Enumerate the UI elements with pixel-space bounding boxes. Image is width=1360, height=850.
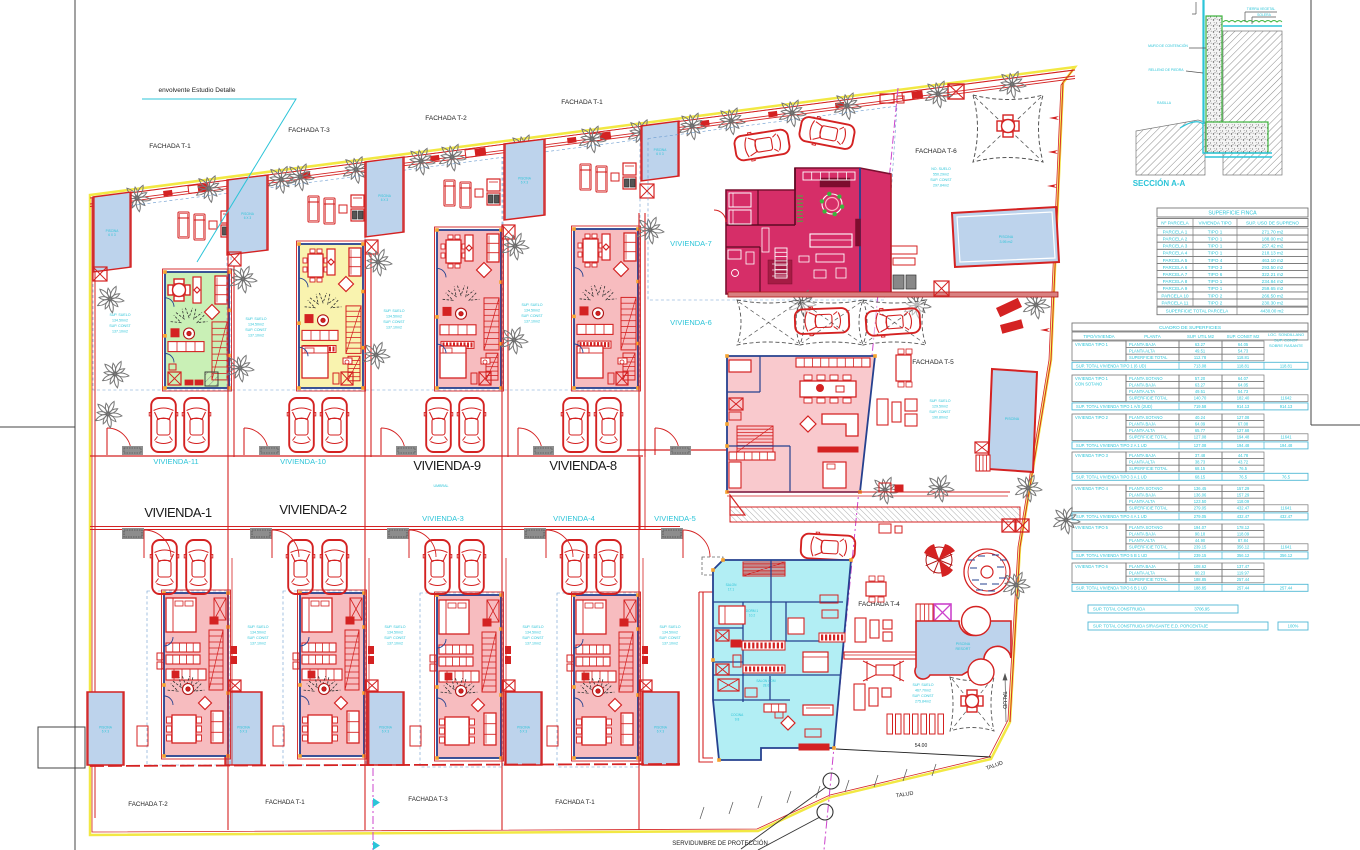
svg-text:356.12: 356.12 xyxy=(1237,553,1250,558)
svg-text:137.10m2: 137.10m2 xyxy=(387,642,403,646)
svg-text:100%: 100% xyxy=(1288,624,1299,629)
svg-text:TALUD: TALUD xyxy=(1001,691,1007,709)
svg-text:57.20: 57.20 xyxy=(1195,376,1206,381)
svg-text:194.48: 194.48 xyxy=(1280,443,1293,448)
svg-text:VIVIENDA-8: VIVIENDA-8 xyxy=(549,458,617,473)
svg-text:10.2: 10.2 xyxy=(749,614,755,618)
svg-text:UMBRAL: UMBRAL xyxy=(434,484,449,488)
svg-text:127.08: 127.08 xyxy=(1194,435,1207,440)
svg-text:6 X 3: 6 X 3 xyxy=(108,233,116,237)
svg-text:TIPO 6: TIPO 6 xyxy=(1208,272,1223,277)
svg-text:118.81: 118.81 xyxy=(1237,355,1250,360)
svg-text:44.90: 44.90 xyxy=(1195,538,1206,543)
svg-text:64.07: 64.07 xyxy=(1238,376,1249,381)
svg-text:SUP. SUELO: SUP. SUELO xyxy=(384,625,405,629)
svg-text:PARCELA 8: PARCELA 8 xyxy=(1163,279,1188,284)
svg-text:356.12: 356.12 xyxy=(1280,553,1293,558)
svg-text:112.78: 112.78 xyxy=(1194,355,1207,360)
svg-text:PLANTA ALTA: PLANTA ALTA xyxy=(1129,538,1155,543)
svg-text:293.50 m2: 293.50 m2 xyxy=(1262,265,1284,270)
svg-text:76.5: 76.5 xyxy=(1239,474,1248,479)
svg-text:PLANTA ALTA: PLANTA ALTA xyxy=(1129,460,1155,465)
svg-text:157.29: 157.29 xyxy=(1237,486,1250,491)
svg-text:PARCELA 7: PARCELA 7 xyxy=(1163,272,1188,277)
svg-text:54.00: 54.00 xyxy=(915,743,928,749)
svg-text:137.10m2: 137.10m2 xyxy=(250,642,266,646)
svg-text:6 X 3: 6 X 3 xyxy=(381,198,389,202)
svg-text:188.85: 188.85 xyxy=(1194,577,1207,582)
svg-text:PLANTA BAJA: PLANTA BAJA xyxy=(1129,493,1156,498)
svg-text:PARCELA 5: PARCELA 5 xyxy=(1163,258,1188,263)
svg-text:VIVIENDA-4: VIVIENDA-4 xyxy=(553,514,595,523)
svg-text:188.85: 188.85 xyxy=(1194,585,1207,590)
svg-text:719.58: 719.58 xyxy=(1194,404,1207,409)
svg-text:SUP. UTIL M2: SUP. UTIL M2 xyxy=(1187,334,1215,339)
svg-text:SUP. SUELO: SUP. SUELO xyxy=(912,683,933,687)
svg-text:SUP. SUELO: SUP. SUELO xyxy=(929,399,950,403)
svg-text:65.77: 65.77 xyxy=(1195,428,1206,433)
svg-text:PLANTA SOTANO: PLANTA SOTANO xyxy=(1129,376,1163,381)
svg-text:136.06: 136.06 xyxy=(1194,493,1207,498)
svg-text:SALON COM: SALON COM xyxy=(756,679,775,683)
svg-text:PLANTA ALTA: PLANTA ALTA xyxy=(1129,428,1155,433)
svg-text:118.81: 118.81 xyxy=(1237,363,1250,368)
svg-text:432.47: 432.47 xyxy=(1237,514,1250,519)
svg-text:TIPO/VIVIENDA: TIPO/VIVIENDA xyxy=(1083,334,1114,339)
svg-text:SUP. CONST: SUP. CONST xyxy=(245,328,267,332)
svg-text:550.29m2: 550.29m2 xyxy=(933,173,949,177)
svg-text:137.10m2: 137.10m2 xyxy=(248,334,264,338)
svg-text:137.10m2: 137.10m2 xyxy=(662,642,678,646)
svg-text:SUPERFICIE TOTAL PARCELA: SUPERFICIE TOTAL PARCELA xyxy=(1166,309,1229,314)
svg-text:SUPERFICIE TOTAL: SUPERFICIE TOTAL xyxy=(1129,435,1168,440)
svg-text:SUPERFICIE TOTAL: SUPERFICIE TOTAL xyxy=(1129,545,1168,550)
svg-text:67.08: 67.08 xyxy=(1238,422,1249,427)
svg-text:PLANTA SOTANO: PLANTA SOTANO xyxy=(1129,525,1163,530)
svg-text:TIPO 1: TIPO 1 xyxy=(1208,229,1223,234)
svg-text:SUP. CONST: SUP. CONST xyxy=(247,636,269,640)
svg-text:134.50m2: 134.50m2 xyxy=(386,315,402,319)
svg-text:137.10m2: 137.10m2 xyxy=(524,320,540,324)
svg-text:TIPO 2: TIPO 2 xyxy=(1208,293,1223,298)
svg-text:PLANTA BAJA: PLANTA BAJA xyxy=(1129,383,1156,388)
svg-text:140.70: 140.70 xyxy=(1194,396,1207,401)
svg-text:CON SOTANO: CON SOTANO xyxy=(1075,382,1102,387)
svg-text:FACHADA T-3: FACHADA T-3 xyxy=(408,796,448,803)
svg-text:TIERRA VEGETAL: TIERRA VEGETAL xyxy=(1247,7,1276,11)
svg-text:28.6: 28.6 xyxy=(763,684,769,688)
svg-text:FACHADA T-1: FACHADA T-1 xyxy=(555,799,595,806)
svg-text:40.24: 40.24 xyxy=(1195,415,1206,420)
svg-text:188.00 m2: 188.00 m2 xyxy=(1262,237,1284,242)
svg-text:COCINA: COCINA xyxy=(731,713,744,717)
svg-text:SOLERA: SOLERA xyxy=(1257,13,1271,17)
svg-text:SUPERFICIE TOTAL: SUPERFICIE TOTAL xyxy=(1129,396,1168,401)
svg-text:SUP. CONST: SUP. CONST xyxy=(384,636,406,640)
svg-text:3.95 m2: 3.95 m2 xyxy=(1000,240,1013,244)
svg-text:279.05: 279.05 xyxy=(1194,514,1207,519)
svg-text:17.1: 17.1 xyxy=(728,588,734,592)
svg-text:SUP. SUELO: SUP. SUELO xyxy=(522,625,543,629)
svg-text:TIPO 2: TIPO 2 xyxy=(1208,300,1223,305)
svg-text:SECCIÓN A-A: SECCIÓN A-A xyxy=(1133,179,1186,188)
svg-text:SUPERFICIE TOTAL: SUPERFICIE TOTAL xyxy=(1129,466,1168,471)
svg-text:VIVIENDA-5: VIVIENDA-5 xyxy=(654,514,696,523)
svg-text:80.23: 80.23 xyxy=(1195,571,1206,576)
svg-text:137.10m2: 137.10m2 xyxy=(386,326,402,330)
svg-text:PARCELA 9: PARCELA 9 xyxy=(1163,286,1188,291)
svg-text:PLANTA BAJA: PLANTA BAJA xyxy=(1129,532,1156,537)
svg-text:297.84m2: 297.84m2 xyxy=(933,184,949,188)
svg-text:54.73: 54.73 xyxy=(1238,389,1249,394)
svg-text:SUP. SUELO: SUP. SUELO xyxy=(383,309,404,313)
svg-text:90.18: 90.18 xyxy=(1195,532,1206,537)
svg-text:37.48: 37.48 xyxy=(1195,453,1206,458)
svg-text:68.15: 68.15 xyxy=(1195,466,1206,471)
svg-text:VIVIENDA-7: VIVIENDA-7 xyxy=(670,239,712,248)
svg-text:11641: 11641 xyxy=(1280,506,1292,511)
svg-text:127.68: 127.68 xyxy=(1237,428,1250,433)
svg-text:SUPERFICIE FINCA: SUPERFICIE FINCA xyxy=(1208,210,1257,216)
svg-text:VIVIENDA TIPO: VIVIENDA TIPO xyxy=(1198,221,1232,226)
svg-text:VIVIENDA-6: VIVIENDA-6 xyxy=(670,318,712,327)
svg-text:134.50m2: 134.50m2 xyxy=(662,631,678,635)
svg-text:6 X 3: 6 X 3 xyxy=(102,730,110,734)
svg-text:VIVIENDA TIPO 3: VIVIENDA TIPO 3 xyxy=(1075,453,1109,458)
svg-text:137.10m2: 137.10m2 xyxy=(525,642,541,646)
svg-text:134.50m2: 134.50m2 xyxy=(525,631,541,635)
svg-text:DORM 1: DORM 1 xyxy=(746,609,759,613)
svg-text:TIPO 3: TIPO 3 xyxy=(1208,265,1223,270)
svg-text:FACHADA T-6: FACHADA T-6 xyxy=(915,148,957,155)
svg-text:SUP. TOTAL VIVIENDA TIPO 4 A 1: SUP. TOTAL VIVIENDA TIPO 4 A 1 UD xyxy=(1076,514,1147,519)
svg-text:43.72: 43.72 xyxy=(1238,460,1249,465)
svg-text:TIPO 1: TIPO 1 xyxy=(1208,279,1223,284)
svg-text:194.48: 194.48 xyxy=(1237,443,1250,448)
svg-text:VIVIENDA-11: VIVIENDA-11 xyxy=(153,457,198,466)
svg-text:914.13: 914.13 xyxy=(1237,404,1250,409)
svg-text:190.80m2: 190.80m2 xyxy=(932,416,948,420)
svg-text:PLANTA BAJA: PLANTA BAJA xyxy=(1129,342,1156,347)
svg-text:TIPO 1: TIPO 1 xyxy=(1208,286,1223,291)
svg-text:266.50 m2: 266.50 m2 xyxy=(1262,293,1284,298)
svg-text:FACHADA T-3: FACHADA T-3 xyxy=(288,127,330,134)
svg-text:SUP. SUELO: SUP. SUELO xyxy=(245,317,266,321)
svg-text:127.08: 127.08 xyxy=(1237,415,1250,420)
svg-text:SUP. SUELO: SUP. SUELO xyxy=(109,313,130,317)
svg-text:SUP. TOTAL VIVIENDA TIPO 2 A 1: SUP. TOTAL VIVIENDA TIPO 2 A 1 UD xyxy=(1076,443,1147,448)
svg-text:SUP. CONST M2: SUP. CONST M2 xyxy=(1227,334,1260,339)
svg-text:279.05: 279.05 xyxy=(1194,506,1207,511)
svg-text:TIPO 1: TIPO 1 xyxy=(1208,244,1223,249)
svg-text:VIVIENDA TIPO 2: VIVIENDA TIPO 2 xyxy=(1075,415,1109,420)
svg-text:136.45: 136.45 xyxy=(1194,486,1207,491)
svg-text:87.84: 87.84 xyxy=(1238,538,1249,543)
svg-text:VIVIENDA TIPO 4: VIVIENDA TIPO 4 xyxy=(1075,486,1109,491)
svg-text:239.15: 239.15 xyxy=(1194,553,1207,558)
svg-text:134.50m2: 134.50m2 xyxy=(524,309,540,313)
svg-text:VIVIENDA TIPO 1: VIVIENDA TIPO 1 xyxy=(1075,376,1109,381)
svg-text:64.05: 64.05 xyxy=(1238,383,1249,388)
svg-text:257.44: 257.44 xyxy=(1280,585,1293,590)
svg-text:FACHADA T-1: FACHADA T-1 xyxy=(149,143,191,150)
svg-text:SALON: SALON xyxy=(726,583,738,587)
svg-text:TIPO 4: TIPO 4 xyxy=(1208,258,1223,263)
svg-text:VIVIENDA-9: VIVIENDA-9 xyxy=(413,458,481,473)
svg-text:PLANTA ALTA: PLANTA ALTA xyxy=(1129,389,1155,394)
svg-text:PLANTA: PLANTA xyxy=(1144,334,1161,339)
svg-text:RASILLA: RASILLA xyxy=(1157,101,1172,105)
svg-text:CUADRO DE SUPERFICIES: CUADRO DE SUPERFICIES xyxy=(1159,325,1221,331)
svg-text:SUP. CONST: SUP. CONST xyxy=(659,636,681,640)
svg-text:NO. SUELO: NO. SUELO xyxy=(931,167,951,171)
svg-text:SUP. TOTAL VIVIENDA TIPO 6 B 1: SUP. TOTAL VIVIENDA TIPO 6 B 1 UD xyxy=(1076,585,1147,590)
svg-text:SUP. USO DE SUPRENO: SUP. USO DE SUPRENO xyxy=(1246,221,1299,226)
svg-text:Nº PARCELA: Nº PARCELA xyxy=(1161,221,1189,226)
svg-text:PLANTA ALTA: PLANTA ALTA xyxy=(1129,499,1155,504)
svg-text:PISCINA: PISCINA xyxy=(999,235,1014,239)
svg-text:PARCELA 2: PARCELA 2 xyxy=(1163,237,1188,242)
svg-text:134.50m2: 134.50m2 xyxy=(250,631,266,635)
svg-text:VIVIENDA-1: VIVIENDA-1 xyxy=(144,505,212,520)
svg-text:234.84 m2: 234.84 m2 xyxy=(1262,279,1284,284)
svg-text:49.51: 49.51 xyxy=(1195,349,1206,354)
svg-text:64.09: 64.09 xyxy=(1195,422,1206,427)
svg-text:194.48: 194.48 xyxy=(1237,435,1250,440)
svg-text:SUPERFICIE TOTAL: SUPERFICIE TOTAL xyxy=(1129,577,1168,582)
svg-text:38.73: 38.73 xyxy=(1195,460,1206,465)
svg-text:PLANTA SOTANO: PLANTA SOTANO xyxy=(1129,486,1163,491)
svg-text:54.73: 54.73 xyxy=(1238,349,1249,354)
svg-text:SUP. SUELO: SUP. SUELO xyxy=(659,625,680,629)
svg-text:3706.95: 3706.95 xyxy=(1194,607,1210,612)
svg-text:239.15: 239.15 xyxy=(1194,545,1207,550)
svg-text:4430.00 m2: 4430.00 m2 xyxy=(1260,309,1284,314)
svg-text:SUP. CONST: SUP. CONST xyxy=(521,314,543,318)
svg-text:182.40: 182.40 xyxy=(1237,396,1250,401)
svg-text:SUP. CONST: SUP. CONST xyxy=(912,694,934,698)
svg-text:76.5: 76.5 xyxy=(1239,466,1248,471)
svg-text:SUP. SUELO: SUP. SUELO xyxy=(247,625,268,629)
svg-text:SUP. CONST: SUP. CONST xyxy=(1274,338,1298,343)
svg-text:PARCELA 10: PARCELA 10 xyxy=(1161,293,1189,298)
svg-text:6 X 3: 6 X 3 xyxy=(382,730,390,734)
svg-text:6 X 3: 6 X 3 xyxy=(240,730,248,734)
svg-text:FACHADA T-1: FACHADA T-1 xyxy=(561,99,603,106)
svg-text:432.47: 432.47 xyxy=(1280,514,1293,519)
svg-text:6 X 3: 6 X 3 xyxy=(520,730,528,734)
svg-text:MURO DE CONTENCIÓN: MURO DE CONTENCIÓN xyxy=(1148,43,1188,48)
svg-text:230.30 m2: 230.30 m2 xyxy=(1262,300,1284,305)
svg-text:PARCELA 6: PARCELA 6 xyxy=(1163,265,1188,270)
svg-text:467.70m2: 467.70m2 xyxy=(915,689,931,693)
svg-text:SUP. TOTAL VIVIENDA TIPO 5 B 1: SUP. TOTAL VIVIENDA TIPO 5 B 1 UD xyxy=(1076,553,1147,558)
svg-text:SUP. TOTAL CONSTRUIDA: SUP. TOTAL CONSTRUIDA xyxy=(1093,607,1145,612)
svg-text:VIVIENDA-10: VIVIENDA-10 xyxy=(280,457,326,466)
svg-text:VIVIENDA-3: VIVIENDA-3 xyxy=(422,514,464,523)
svg-text:SUP. SUELO: SUP. SUELO xyxy=(521,303,542,307)
svg-text:137.10m2: 137.10m2 xyxy=(112,330,128,334)
svg-text:118.09: 118.09 xyxy=(1237,532,1250,537)
svg-text:PARCELA 1: PARCELA 1 xyxy=(1163,229,1188,234)
svg-text:VIVIENDA-2: VIVIENDA-2 xyxy=(279,502,347,517)
svg-text:TIPO 1: TIPO 1 xyxy=(1208,251,1223,256)
svg-text:157.29: 157.29 xyxy=(1237,493,1250,498)
svg-text:SUP. CONST: SUP. CONST xyxy=(929,410,951,414)
svg-text:6 X 3: 6 X 3 xyxy=(521,181,529,185)
svg-text:257.44: 257.44 xyxy=(1237,585,1250,590)
svg-text:PISCINA: PISCINA xyxy=(1005,417,1020,421)
svg-text:463.10 m2: 463.10 m2 xyxy=(1262,258,1284,263)
svg-text:9.8: 9.8 xyxy=(735,718,740,722)
svg-text:PISCINA: PISCINA xyxy=(956,642,971,646)
svg-text:6 X 3: 6 X 3 xyxy=(657,730,665,734)
svg-text:PARCELA 3: PARCELA 3 xyxy=(1163,244,1188,249)
svg-text:257.44: 257.44 xyxy=(1237,577,1250,582)
svg-text:SUP. TOTAL VIVIENDA TIPO 1 (6: SUP. TOTAL VIVIENDA TIPO 1 (6 UD) xyxy=(1076,363,1147,368)
svg-text:6 X 3: 6 X 3 xyxy=(244,216,252,220)
svg-text:134.50m2: 134.50m2 xyxy=(387,631,403,635)
svg-text:PLANTA BAJA: PLANTA BAJA xyxy=(1129,564,1156,569)
svg-text:63.27: 63.27 xyxy=(1195,383,1206,388)
svg-text:SUPERFICIE TOTAL: SUPERFICIE TOTAL xyxy=(1129,506,1168,511)
svg-text:68.15: 68.15 xyxy=(1195,474,1206,479)
svg-text:11641: 11641 xyxy=(1280,545,1292,550)
svg-text:PLANTA BAJA: PLANTA BAJA xyxy=(1129,453,1156,458)
svg-text:259.65 m2: 259.65 m2 xyxy=(1262,286,1284,291)
svg-text:TIPO 1: TIPO 1 xyxy=(1208,237,1223,242)
svg-text:257.42 m2: 257.42 m2 xyxy=(1262,244,1284,249)
svg-text:PARCELA 4: PARCELA 4 xyxy=(1163,251,1188,256)
svg-text:76.5: 76.5 xyxy=(1282,474,1291,479)
svg-text:SUP. TOTAL VIVIENDA TIPO 1 A/S: SUP. TOTAL VIVIENDA TIPO 1 A/S (2UD) xyxy=(1076,404,1153,409)
svg-text:RELLENO DE PIEDRA: RELLENO DE PIEDRA xyxy=(1148,68,1184,72)
svg-text:356.12: 356.12 xyxy=(1237,545,1250,550)
svg-text:129.50m2: 129.50m2 xyxy=(932,405,948,409)
svg-text:275.84m2: 275.84m2 xyxy=(915,700,931,704)
svg-text:49.51: 49.51 xyxy=(1195,389,1206,394)
svg-text:108.62: 108.62 xyxy=(1194,564,1207,569)
svg-text:118.81: 118.81 xyxy=(1280,363,1293,368)
svg-text:218.13 m2: 218.13 m2 xyxy=(1262,251,1284,256)
svg-text:134.50m2: 134.50m2 xyxy=(248,323,264,327)
svg-text:SUP. CONST: SUP. CONST xyxy=(930,178,952,182)
svg-text:VIVIENDA TIPO 1: VIVIENDA TIPO 1 xyxy=(1075,342,1109,347)
svg-text:127.08: 127.08 xyxy=(1194,443,1207,448)
svg-text:envolvente Estudio Detalle: envolvente Estudio Detalle xyxy=(159,87,236,94)
svg-text:SUPERFICIE TOTAL: SUPERFICIE TOTAL xyxy=(1129,355,1168,360)
svg-text:RESORT: RESORT xyxy=(956,647,972,651)
svg-text:SUP. TOTAL VIVIENDA TIPO 3 A 1: SUP. TOTAL VIVIENDA TIPO 3 A 1 UD xyxy=(1076,474,1147,479)
svg-text:VIVIENDA TIPO 5: VIVIENDA TIPO 5 xyxy=(1075,525,1109,530)
svg-text:322.21 m2: 322.21 m2 xyxy=(1262,272,1284,277)
svg-text:VIVIENDA TIPO 6: VIVIENDA TIPO 6 xyxy=(1075,564,1109,569)
svg-text:134.50m2: 134.50m2 xyxy=(112,319,128,323)
svg-text:271.70 m2: 271.70 m2 xyxy=(1262,229,1284,234)
svg-text:SUP. CONST: SUP. CONST xyxy=(109,324,131,328)
svg-text:FACHADA T-5: FACHADA T-5 xyxy=(912,359,954,366)
svg-text:PLANTA ALTA: PLANTA ALTA xyxy=(1129,349,1155,354)
svg-text:PARCELA 11: PARCELA 11 xyxy=(1162,300,1189,305)
svg-text:118.09: 118.09 xyxy=(1237,499,1250,504)
svg-text:432.47: 432.47 xyxy=(1237,506,1250,511)
svg-text:63.27: 63.27 xyxy=(1195,342,1206,347)
svg-text:178.12: 178.12 xyxy=(1237,525,1250,530)
svg-text:64.05: 64.05 xyxy=(1238,342,1249,347)
svg-text:6 X 3: 6 X 3 xyxy=(656,152,664,156)
svg-text:119.97: 119.97 xyxy=(1237,571,1250,576)
svg-text:LOC. SONDILLANO: LOC. SONDILLANO xyxy=(1268,332,1304,337)
svg-text:914.13: 914.13 xyxy=(1280,404,1293,409)
svg-text:PLANTA SOTANO: PLANTA SOTANO xyxy=(1129,415,1163,420)
svg-text:SUP. TOTAL CONSTRUIDA S/RASANT: SUP. TOTAL CONSTRUIDA S/RASANTE E.D. POR… xyxy=(1093,624,1208,629)
svg-text:SUP. CONST: SUP. CONST xyxy=(522,636,544,640)
svg-text:PLANTA ALTA: PLANTA ALTA xyxy=(1129,571,1155,576)
svg-text:137.47: 137.47 xyxy=(1237,564,1250,569)
svg-text:FACHADA T-2: FACHADA T-2 xyxy=(128,801,168,808)
svg-text:44.78: 44.78 xyxy=(1238,453,1249,458)
svg-text:11641: 11641 xyxy=(1280,435,1292,440)
svg-text:SERVIDUMBRE DE PROTECCIÓN: SERVIDUMBRE DE PROTECCIÓN xyxy=(672,840,768,847)
svg-text:194.07: 194.07 xyxy=(1194,525,1207,530)
svg-text:PLANTA BAJA: PLANTA BAJA xyxy=(1129,422,1156,427)
svg-text:FACHADA T-1: FACHADA T-1 xyxy=(265,799,305,806)
svg-text:SOBRE RASANTE: SOBRE RASANTE xyxy=(1269,343,1303,348)
svg-text:SUP. CONST: SUP. CONST xyxy=(383,320,405,324)
svg-text:11642: 11642 xyxy=(1280,396,1292,401)
svg-text:FACHADA T-2: FACHADA T-2 xyxy=(425,115,467,122)
svg-text:123.50: 123.50 xyxy=(1194,499,1207,504)
svg-text:713.08: 713.08 xyxy=(1194,363,1207,368)
